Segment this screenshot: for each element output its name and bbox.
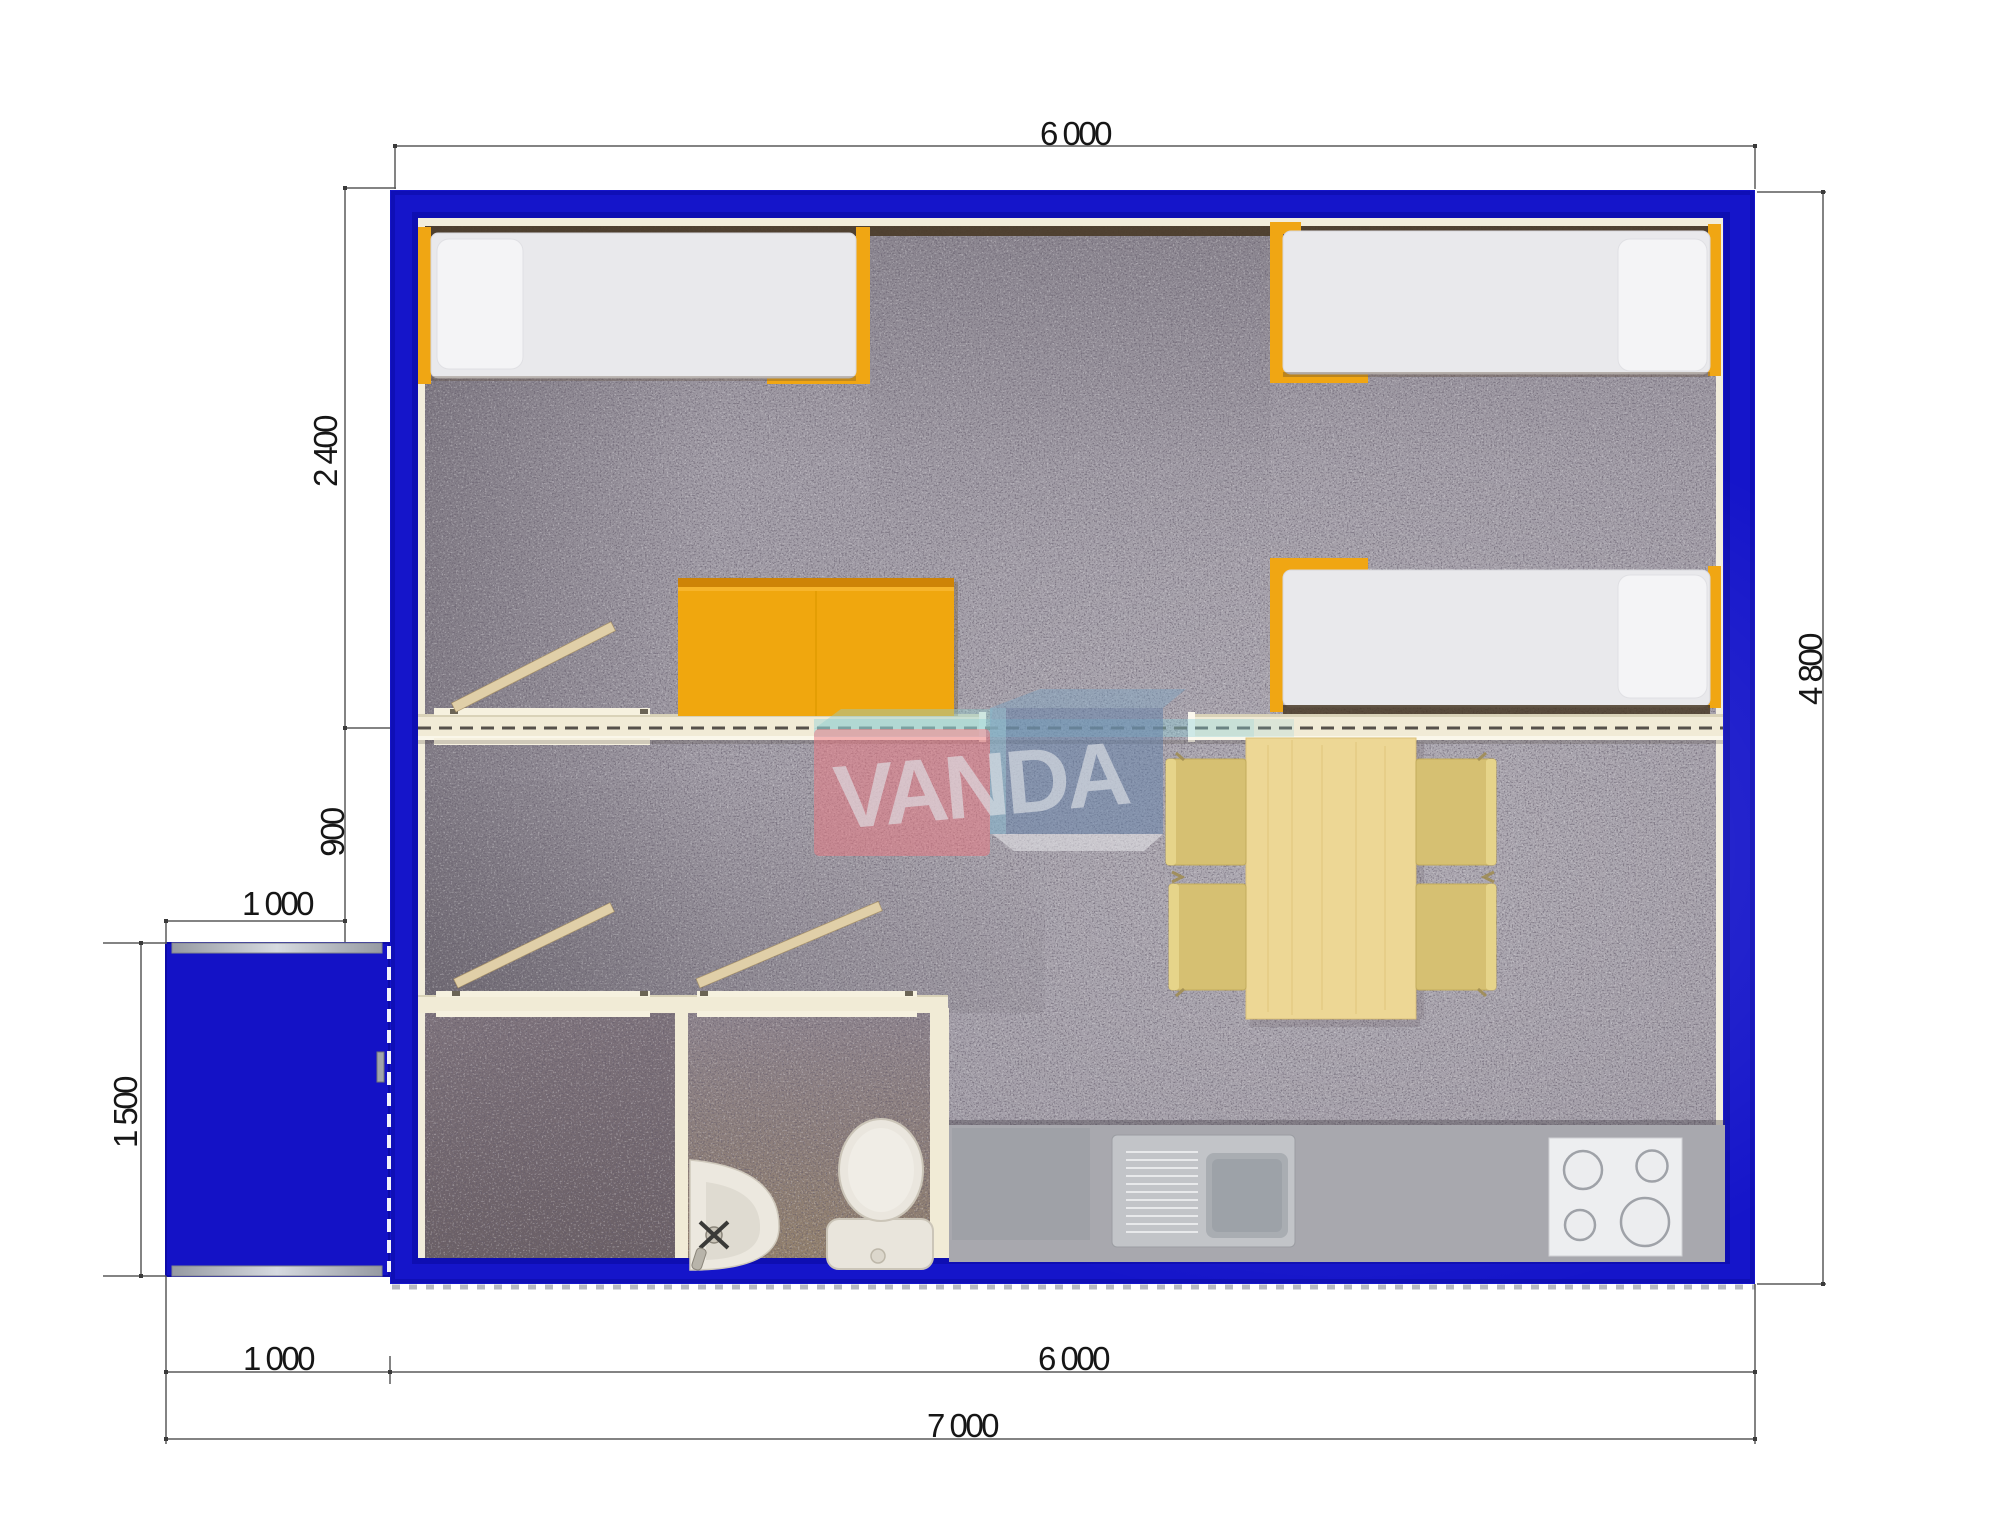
svg-text:7 000: 7 000	[927, 1407, 999, 1444]
svg-text:6 000: 6 000	[1038, 1340, 1110, 1377]
svg-text:6 000: 6 000	[1040, 115, 1112, 152]
svg-text:4 800: 4 800	[1792, 633, 1829, 705]
svg-text:1 000: 1 000	[243, 1340, 315, 1377]
svg-text:900: 900	[314, 807, 351, 857]
svg-text:1 500: 1 500	[107, 1076, 144, 1148]
svg-text:1 000: 1 000	[242, 885, 314, 922]
svg-text:2 400: 2 400	[307, 415, 344, 487]
